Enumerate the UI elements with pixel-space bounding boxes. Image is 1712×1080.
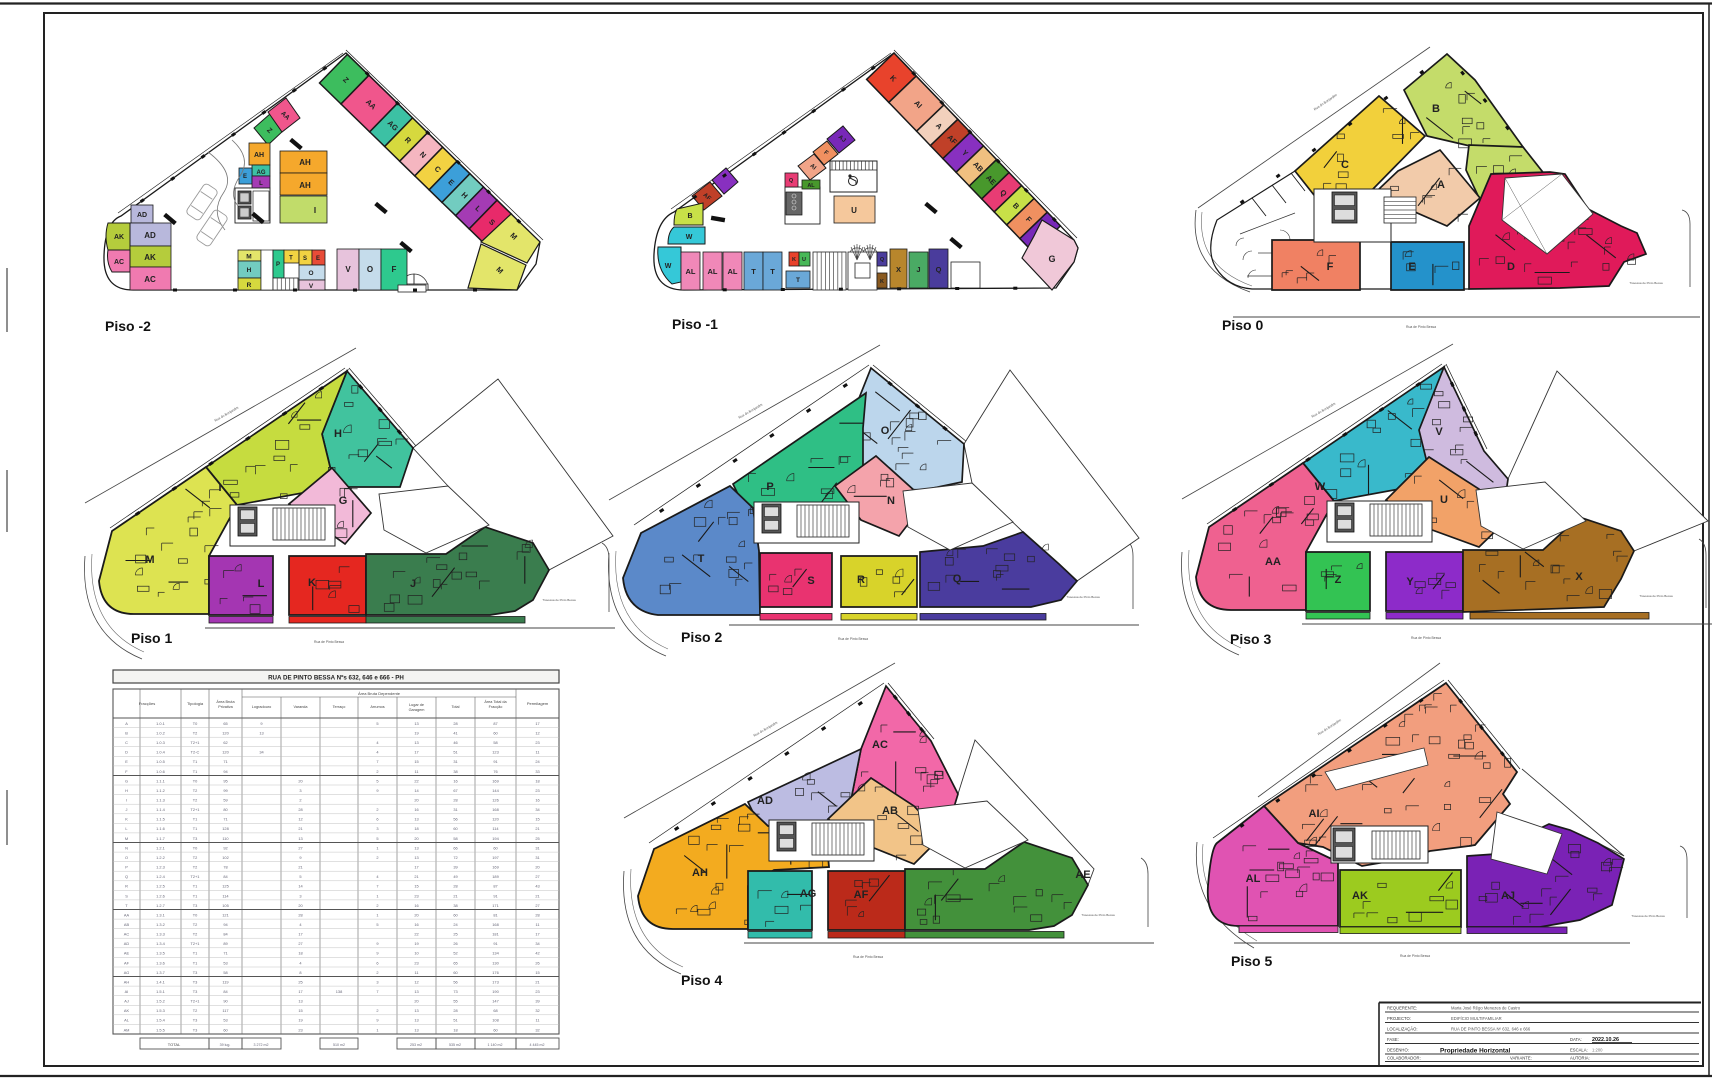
svg-text:1.3.1: 1.3.1 [156, 912, 165, 917]
svg-text:51: 51 [453, 1018, 457, 1023]
svg-text:68: 68 [493, 1008, 497, 1013]
svg-text:AA: AA [1265, 556, 1281, 568]
svg-text:RUA DE PINTO BESSA Nºs 632, 64: RUA DE PINTO BESSA Nºs 632, 646 e 666 - … [268, 675, 404, 682]
svg-text:J: J [410, 578, 416, 590]
svg-text:I: I [126, 798, 127, 803]
svg-text:56: 56 [453, 817, 457, 822]
svg-text:M: M [125, 836, 128, 841]
svg-text:AF: AF [124, 960, 130, 965]
svg-text:32: 32 [535, 1008, 539, 1013]
svg-text:71: 71 [223, 951, 227, 956]
svg-text:17: 17 [535, 721, 539, 726]
svg-text:Logradouro: Logradouro [252, 705, 271, 709]
svg-text:99: 99 [223, 788, 227, 793]
svg-text:121: 121 [222, 912, 229, 917]
svg-text:9: 9 [376, 951, 378, 956]
svg-text:T2+1: T2+1 [191, 999, 200, 1004]
svg-text:176: 176 [492, 970, 499, 975]
svg-text:AG: AG [124, 970, 130, 975]
svg-text:27: 27 [535, 874, 539, 879]
svg-text:21: 21 [453, 893, 457, 898]
svg-text:AC: AC [124, 932, 130, 937]
svg-text:AE: AE [124, 951, 130, 956]
svg-text:17: 17 [414, 865, 418, 870]
svg-text:2: 2 [376, 1008, 378, 1013]
svg-text:110: 110 [222, 836, 229, 841]
svg-text:J: J [916, 265, 920, 274]
svg-text:65: 65 [223, 721, 227, 726]
svg-text:91: 91 [493, 893, 497, 898]
svg-text:AF: AF [854, 889, 869, 901]
svg-text:13: 13 [414, 1027, 418, 1032]
svg-text:72: 72 [453, 855, 457, 860]
svg-text:AL: AL [124, 1018, 130, 1023]
svg-text:535 m2: 535 m2 [449, 1043, 461, 1047]
svg-text:T2: T2 [193, 922, 198, 927]
svg-text:32: 32 [535, 1027, 539, 1032]
svg-text:AD: AD [757, 795, 773, 807]
svg-text:71: 71 [223, 759, 227, 764]
svg-text:1.1.1: 1.1.1 [156, 778, 165, 783]
svg-text:RUA DE PINTO BESSA Nº 632, 646: RUA DE PINTO BESSA Nº 632, 646 e 666 [1451, 1027, 1531, 1032]
svg-text:43: 43 [535, 884, 539, 889]
svg-text:1.3.7: 1.3.7 [156, 970, 165, 975]
svg-text:T: T [796, 277, 800, 284]
svg-text:O: O [881, 425, 890, 437]
svg-text:Q: Q [936, 265, 942, 274]
svg-text:13: 13 [414, 721, 418, 726]
svg-text:67: 67 [453, 788, 457, 793]
svg-text:AH: AH [254, 152, 264, 159]
svg-text:Rua de Pinto Bessa: Rua de Pinto Bessa [314, 640, 344, 644]
svg-text:T2-C: T2-C [191, 750, 200, 755]
svg-text:173: 173 [492, 979, 499, 984]
svg-text:2: 2 [376, 807, 378, 812]
svg-text:9: 9 [376, 1018, 378, 1023]
svg-text:49: 49 [453, 874, 457, 879]
svg-text:AG: AG [257, 170, 266, 176]
svg-text:AH: AH [124, 979, 130, 984]
svg-text:1.0.3: 1.0.3 [156, 740, 165, 745]
svg-text:3 272 m2: 3 272 m2 [254, 1043, 269, 1047]
svg-text:23: 23 [535, 989, 539, 994]
svg-text:52: 52 [453, 951, 457, 956]
svg-text:U: U [802, 257, 806, 263]
svg-text:Travessa de Pinto Bessa: Travessa de Pinto Bessa [1081, 913, 1115, 917]
svg-text:T2: T2 [193, 865, 198, 870]
svg-text:Área Bruta Dependente: Área Bruta Dependente [358, 691, 401, 696]
svg-text:AL: AL [728, 267, 738, 276]
svg-text:D: D [1507, 261, 1515, 273]
svg-text:T1: T1 [193, 960, 198, 965]
svg-text:1.0.4: 1.0.4 [156, 750, 165, 755]
svg-text:N: N [887, 495, 895, 507]
svg-text:5: 5 [299, 874, 301, 879]
svg-text:5: 5 [376, 922, 378, 927]
svg-text:13: 13 [414, 1008, 418, 1013]
svg-text:28: 28 [298, 912, 302, 917]
svg-text:1.0.6: 1.0.6 [156, 769, 165, 774]
svg-text:AUTORIA:: AUTORIA: [1570, 1056, 1590, 1061]
svg-text:22: 22 [414, 778, 418, 783]
svg-text:33: 33 [535, 769, 539, 774]
svg-text:V: V [1435, 426, 1443, 438]
svg-text:28: 28 [298, 807, 302, 812]
svg-text:171: 171 [492, 903, 499, 908]
svg-text:C: C [1341, 159, 1349, 171]
svg-text:AJ: AJ [124, 999, 129, 1004]
svg-text:L: L [259, 181, 263, 187]
svg-text:16: 16 [414, 922, 418, 927]
svg-text:15: 15 [535, 817, 539, 822]
svg-text:A: A [125, 721, 128, 726]
svg-text:W: W [686, 234, 693, 241]
svg-text:AC: AC [114, 259, 124, 266]
svg-text:19: 19 [298, 1018, 302, 1023]
svg-text:COLABORADOR:: COLABORADOR: [1387, 1056, 1421, 1061]
svg-text:3: 3 [376, 979, 378, 984]
svg-text:AC: AC [872, 739, 888, 751]
svg-text:1.1.3: 1.1.3 [156, 798, 165, 803]
svg-text:AD: AD [144, 231, 156, 240]
svg-text:T2+1: T2+1 [191, 740, 200, 745]
svg-text:E: E [243, 174, 247, 180]
svg-text:3: 3 [299, 893, 301, 898]
svg-text:194: 194 [492, 836, 499, 841]
svg-text:N: N [125, 845, 128, 850]
svg-text:Rua de Pinto Bessa: Rua de Pinto Bessa [853, 955, 883, 959]
svg-text:Piso 2: Piso 2 [681, 629, 722, 645]
svg-text:T3: T3 [193, 1027, 198, 1032]
svg-text:AI: AI [125, 989, 129, 994]
svg-text:147: 147 [492, 999, 499, 1004]
svg-text:V: V [309, 283, 314, 290]
svg-text:Travessa de Pinto Bessa: Travessa de Pinto Bessa [1631, 914, 1665, 918]
svg-text:Rua de Pinto Bessa: Rua de Pinto Bessa [1411, 636, 1441, 640]
svg-text:Maria José Rêgo Menezes de Cas: Maria José Rêgo Menezes de Castro [1451, 1006, 1521, 1011]
svg-text:W: W [1315, 481, 1326, 493]
svg-text:119: 119 [222, 979, 228, 984]
svg-text:ESCALA:: ESCALA: [1570, 1048, 1588, 1053]
svg-text:PROJECTO:: PROJECTO: [1387, 1016, 1411, 1021]
svg-text:120: 120 [222, 750, 229, 755]
svg-text:26: 26 [453, 941, 457, 946]
svg-text:15: 15 [414, 759, 418, 764]
svg-text:REQUERENTE:: REQUERENTE: [1387, 1006, 1417, 1011]
svg-text:J: J [126, 807, 128, 812]
svg-text:6: 6 [376, 817, 378, 822]
svg-text:F: F [1327, 261, 1334, 273]
svg-text:T2: T2 [193, 798, 198, 803]
svg-text:31: 31 [535, 845, 539, 850]
svg-text:169: 169 [492, 778, 499, 783]
svg-text:53: 53 [223, 960, 227, 965]
svg-text:H: H [125, 788, 128, 793]
svg-text:1.5.1: 1.5.1 [156, 989, 165, 994]
svg-text:Q: Q [880, 257, 885, 263]
svg-text:1.3.2: 1.3.2 [156, 922, 165, 927]
svg-text:13: 13 [414, 855, 418, 860]
svg-text:1.1.5: 1.1.5 [156, 817, 165, 822]
svg-text:DATA:: DATA: [1570, 1037, 1582, 1042]
svg-text:T: T [770, 267, 775, 276]
svg-text:1.3.5: 1.3.5 [156, 951, 165, 956]
svg-text:Permilagem: Permilagem [527, 701, 549, 706]
svg-text:4 445 m2: 4 445 m2 [530, 1043, 545, 1047]
svg-text:39: 39 [453, 865, 457, 870]
svg-text:AH: AH [299, 158, 311, 167]
svg-text:11: 11 [414, 769, 418, 774]
svg-text:13: 13 [414, 845, 418, 850]
svg-text:91: 91 [493, 941, 497, 946]
svg-text:62: 62 [223, 740, 227, 745]
svg-text:1.5.2: 1.5.2 [156, 999, 165, 1004]
svg-text:T2+1: T2+1 [191, 874, 200, 879]
svg-text:AL: AL [686, 267, 696, 276]
svg-text:Rua de Pinto Bessa: Rua de Pinto Bessa [1406, 325, 1436, 329]
svg-text:38: 38 [453, 769, 457, 774]
svg-text:T1: T1 [193, 817, 198, 822]
svg-text:I: I [314, 206, 316, 215]
svg-text:2: 2 [376, 970, 378, 975]
svg-text:28: 28 [453, 721, 457, 726]
svg-text:T3: T3 [193, 979, 198, 984]
svg-text:120: 120 [492, 817, 499, 822]
svg-text:1.3.3: 1.3.3 [156, 932, 165, 937]
svg-text:1.2.3: 1.2.3 [156, 865, 165, 870]
svg-text:510 m2: 510 m2 [333, 1043, 345, 1047]
svg-text:23: 23 [414, 960, 418, 965]
svg-text:T1: T1 [193, 951, 198, 956]
svg-text:Rua de Pinto Bessa: Rua de Pinto Bessa [838, 637, 868, 641]
svg-text:25: 25 [298, 979, 302, 984]
svg-text:1:200: 1:200 [1592, 1048, 1603, 1053]
svg-text:T1: T1 [193, 769, 198, 774]
svg-text:25: 25 [453, 932, 457, 937]
svg-text:O: O [308, 270, 313, 277]
svg-text:T3: T3 [193, 1018, 198, 1023]
svg-text:AE: AE [1075, 869, 1090, 881]
svg-text:1 140 m2: 1 140 m2 [488, 1043, 503, 1047]
svg-text:T3: T3 [193, 836, 198, 841]
svg-text:130: 130 [492, 960, 499, 965]
svg-text:B: B [125, 731, 128, 736]
svg-text:AD: AD [137, 212, 147, 219]
svg-text:T2: T2 [193, 932, 198, 937]
svg-text:87: 87 [493, 721, 497, 726]
svg-text:18: 18 [298, 951, 302, 956]
svg-text:18: 18 [414, 826, 418, 831]
svg-text:120: 120 [222, 731, 229, 736]
svg-text:21: 21 [535, 979, 539, 984]
svg-text:18: 18 [535, 778, 539, 783]
svg-text:T1: T1 [193, 884, 198, 889]
svg-text:190: 190 [492, 989, 499, 994]
svg-text:V: V [345, 265, 351, 274]
svg-text:AB: AB [124, 922, 130, 927]
svg-text:39: 39 [535, 999, 539, 1004]
svg-text:AJ: AJ [1501, 890, 1515, 902]
svg-text:59: 59 [223, 798, 227, 803]
svg-text:23: 23 [535, 740, 539, 745]
svg-text:1.1.4: 1.1.4 [156, 807, 165, 812]
svg-text:G: G [1048, 254, 1055, 264]
svg-text:Garagem: Garagem [409, 708, 425, 712]
svg-text:AL: AL [1246, 873, 1261, 885]
svg-text:E: E [1408, 261, 1415, 273]
svg-text:1.2.2: 1.2.2 [156, 855, 165, 860]
svg-text:126: 126 [492, 798, 499, 803]
svg-text:AH: AH [299, 181, 311, 190]
svg-text:F: F [392, 265, 397, 274]
svg-text:U: U [1440, 494, 1448, 506]
svg-text:11: 11 [535, 750, 539, 755]
svg-text:1.3.6: 1.3.6 [156, 960, 165, 965]
svg-text:T2: T2 [193, 731, 198, 736]
svg-text:17: 17 [298, 989, 302, 994]
svg-text:78: 78 [223, 865, 227, 870]
svg-text:AG: AG [800, 888, 817, 900]
svg-text:1.5.3: 1.5.3 [156, 1008, 165, 1013]
svg-text:23: 23 [535, 788, 539, 793]
svg-text:B: B [687, 213, 692, 220]
svg-text:K: K [792, 257, 796, 263]
svg-text:R: R [247, 282, 252, 289]
svg-text:39 lug.: 39 lug. [220, 1043, 231, 1047]
svg-text:T3: T3 [193, 989, 198, 994]
svg-text:11: 11 [535, 1018, 539, 1023]
svg-text:1.5.5: 1.5.5 [156, 1027, 165, 1032]
svg-text:26: 26 [535, 960, 539, 965]
svg-text:108: 108 [492, 1018, 499, 1023]
svg-text:15: 15 [414, 884, 418, 889]
svg-text:19: 19 [414, 731, 418, 736]
svg-text:Fracções: Fracções [139, 701, 155, 706]
svg-text:TOTAL: TOTAL [168, 1042, 181, 1047]
svg-text:FASE:: FASE: [1387, 1037, 1399, 1042]
svg-text:S: S [303, 256, 307, 262]
svg-text:5: 5 [376, 836, 378, 841]
svg-text:M: M [145, 554, 154, 566]
svg-text:1: 1 [376, 893, 378, 898]
svg-text:Piso 1: Piso 1 [131, 630, 172, 646]
svg-text:3: 3 [299, 788, 301, 793]
svg-text:7: 7 [376, 759, 378, 764]
svg-text:T: T [698, 553, 705, 565]
svg-text:X: X [1575, 571, 1583, 583]
svg-text:5: 5 [376, 778, 378, 783]
svg-text:23: 23 [414, 893, 418, 898]
svg-text:12: 12 [414, 979, 418, 984]
svg-text:P: P [125, 865, 128, 870]
svg-text:Travessa de Pinto Bessa: Travessa de Pinto Bessa [1066, 595, 1100, 599]
svg-text:21: 21 [298, 826, 302, 831]
svg-text:12: 12 [535, 731, 539, 736]
svg-text:Piso -1: Piso -1 [672, 316, 718, 332]
svg-text:1.3.4: 1.3.4 [156, 941, 165, 946]
svg-text:31: 31 [453, 807, 457, 812]
svg-text:C: C [125, 740, 128, 745]
svg-text:28: 28 [453, 798, 457, 803]
svg-text:51: 51 [453, 750, 457, 755]
svg-text:12: 12 [298, 817, 302, 822]
svg-text:27: 27 [298, 941, 302, 946]
svg-text:Total: Total [451, 705, 459, 709]
svg-text:102: 102 [222, 855, 229, 860]
svg-text:D: D [125, 750, 128, 755]
svg-text:168: 168 [492, 922, 499, 927]
svg-text:3: 3 [376, 826, 378, 831]
svg-text:5: 5 [376, 721, 378, 726]
svg-text:8: 8 [299, 970, 301, 975]
svg-text:Y: Y [1406, 576, 1414, 588]
svg-text:Tipologia: Tipologia [187, 701, 204, 706]
svg-text:2: 2 [376, 769, 378, 774]
svg-text:H: H [247, 267, 252, 274]
svg-text:76: 76 [493, 769, 497, 774]
svg-text:Varanda: Varanda [293, 705, 308, 709]
svg-text:Piso 3: Piso 3 [1230, 631, 1271, 647]
svg-text:46: 46 [453, 740, 457, 745]
svg-text:16: 16 [535, 798, 539, 803]
svg-text:81: 81 [493, 912, 497, 917]
svg-text:27: 27 [535, 903, 539, 908]
svg-text:41: 41 [453, 731, 457, 736]
svg-text:Propriedade Horizontal: Propriedade Horizontal [1440, 1048, 1511, 1055]
svg-text:1: 1 [376, 1027, 378, 1032]
svg-text:21: 21 [298, 865, 302, 870]
svg-text:53: 53 [223, 1018, 227, 1023]
svg-text:9: 9 [260, 721, 262, 726]
svg-text:117: 117 [222, 1008, 228, 1013]
svg-text:21: 21 [414, 874, 418, 879]
svg-text:Privativa: Privativa [218, 705, 233, 709]
svg-text:21: 21 [535, 893, 539, 898]
svg-text:17: 17 [298, 932, 302, 937]
svg-text:DESENHO:: DESENHO: [1387, 1048, 1409, 1053]
svg-text:123: 123 [492, 750, 499, 755]
svg-text:253 m2: 253 m2 [410, 1043, 422, 1047]
svg-text:22: 22 [414, 932, 418, 937]
svg-text:Z: Z [1335, 574, 1342, 586]
svg-text:T1: T1 [193, 759, 198, 764]
svg-text:181: 181 [492, 932, 499, 937]
svg-text:13: 13 [414, 989, 418, 994]
svg-text:9: 9 [376, 941, 378, 946]
svg-text:AA: AA [124, 912, 130, 917]
svg-text:105: 105 [222, 903, 229, 908]
svg-text:42: 42 [535, 951, 539, 956]
svg-text:T: T [289, 256, 293, 262]
svg-text:2: 2 [376, 903, 378, 908]
svg-text:VARIANTE:: VARIANTE: [1510, 1056, 1532, 1061]
svg-text:1.1.7: 1.1.7 [156, 836, 165, 841]
svg-text:114: 114 [492, 826, 499, 831]
svg-text:15: 15 [298, 1008, 302, 1013]
svg-text:9: 9 [376, 788, 378, 793]
svg-text:R: R [125, 884, 128, 889]
svg-text:27: 27 [298, 845, 302, 850]
svg-text:LOCALIZAÇÃO:: LOCALIZAÇÃO: [1387, 1027, 1417, 1032]
svg-text:16: 16 [453, 778, 457, 783]
svg-text:23: 23 [298, 1027, 302, 1032]
svg-text:Lugar de: Lugar de [409, 703, 424, 707]
svg-text:T2: T2 [193, 1008, 198, 1013]
svg-text:13: 13 [414, 817, 418, 822]
svg-text:31: 31 [453, 759, 457, 764]
svg-text:65: 65 [453, 960, 457, 965]
svg-text:T3: T3 [193, 970, 198, 975]
